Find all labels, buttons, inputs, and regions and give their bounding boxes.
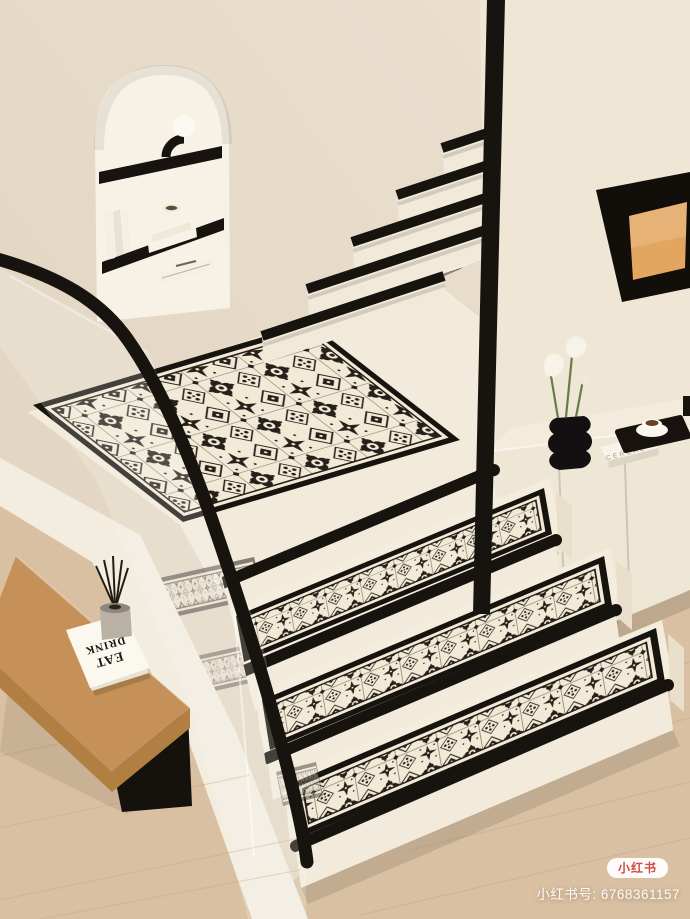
interior-photo: CEREAL — [0, 0, 690, 919]
shelf-cup-interior — [166, 206, 178, 210]
arched-niche — [95, 66, 230, 322]
coffee-in-cup — [646, 420, 659, 426]
scene-svg: CEREAL — [0, 0, 690, 919]
diffuser-jar-mouth — [109, 605, 121, 610]
table-lamp-globe — [173, 115, 195, 137]
counter-object — [683, 396, 690, 416]
niche-interior — [95, 66, 230, 322]
wavy-black-vase — [548, 416, 592, 470]
